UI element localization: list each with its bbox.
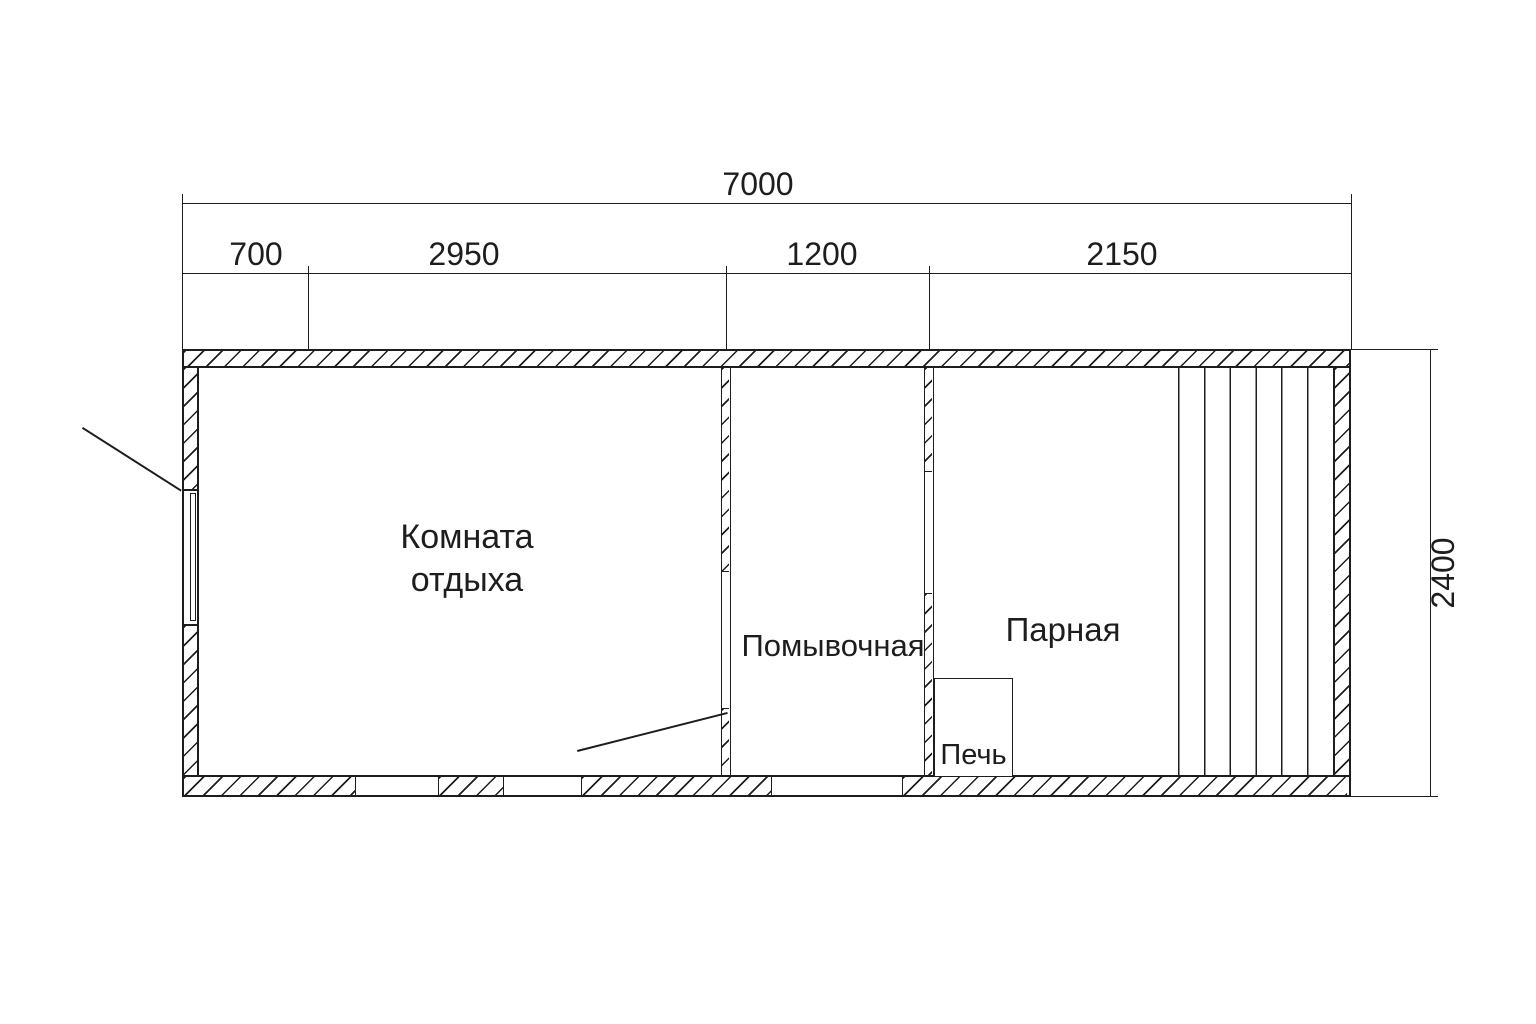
stove-label: Печь bbox=[935, 741, 1012, 770]
dim-tick-2950-1200 bbox=[726, 266, 727, 349]
dim-label-2950: 2950 bbox=[428, 238, 499, 270]
partition-1-upper-segment bbox=[722, 368, 729, 572]
dim-tick-1200-2150 bbox=[929, 266, 930, 349]
partition-2-lower-segment bbox=[925, 593, 932, 775]
room-label-rest-line2: отдыха bbox=[400, 559, 533, 602]
dim-label-overall-depth: 2400 bbox=[1427, 537, 1459, 608]
left-wall-lower-segment bbox=[184, 624, 197, 775]
left-wall-upper-segment bbox=[184, 368, 197, 491]
left-window bbox=[190, 493, 196, 621]
bottom-wall-segment-3 bbox=[581, 777, 772, 795]
dim-line-width-segments bbox=[182, 273, 1351, 274]
right-wall bbox=[1333, 368, 1351, 775]
top-wall bbox=[182, 349, 1351, 368]
dim-label-overall-width: 7000 bbox=[722, 168, 793, 200]
dim-tick-700 bbox=[308, 266, 309, 349]
partition-2-upper-segment bbox=[925, 368, 932, 472]
partition-wash-steam bbox=[924, 368, 934, 775]
dim-label-1200: 1200 bbox=[786, 238, 857, 270]
bottom-wall-segment-1 bbox=[184, 777, 356, 795]
room-label-rest: Комната отдыха bbox=[400, 516, 533, 602]
room-label-steam: Парная bbox=[1006, 611, 1121, 649]
bottom-wall-segment-4 bbox=[902, 777, 1347, 795]
dim-extension-left bbox=[182, 194, 183, 349]
partition-1-lower-segment bbox=[722, 708, 729, 775]
dim-extension-depth-top bbox=[1351, 349, 1438, 350]
dim-extension-depth-bottom bbox=[1351, 796, 1438, 797]
room-label-wash: Помывочная bbox=[741, 628, 924, 664]
bottom-wall-segment-2 bbox=[438, 777, 504, 795]
dim-extension-right bbox=[1351, 194, 1352, 349]
exterior-door-swing-line bbox=[82, 427, 181, 491]
dim-line-overall-width bbox=[182, 203, 1351, 204]
bench-slats bbox=[1178, 368, 1333, 775]
stove-box: Печь bbox=[934, 678, 1013, 776]
bottom-wall bbox=[182, 775, 1351, 797]
floor-plan: 7000 700 2950 1200 2150 2400 Печь bbox=[0, 0, 1536, 1024]
dim-label-700: 700 bbox=[229, 238, 282, 270]
dim-label-2150: 2150 bbox=[1086, 238, 1157, 270]
room-label-rest-line1: Комната bbox=[400, 516, 533, 559]
interior-door-swing-line bbox=[577, 712, 728, 751]
